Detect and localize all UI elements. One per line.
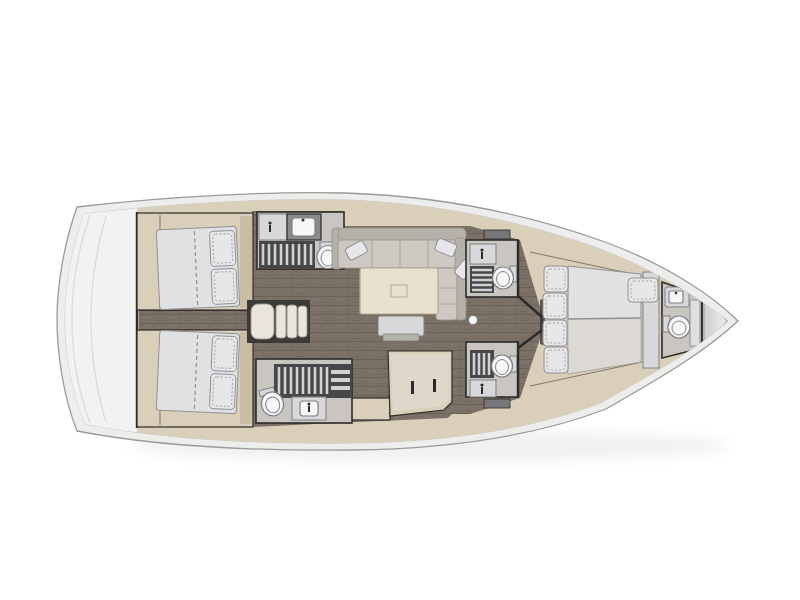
yacht-floor-plan	[0, 0, 800, 600]
head-aft-starboard	[256, 359, 352, 423]
head-aft-port	[257, 212, 344, 269]
vanity-cabinet	[259, 214, 287, 240]
sink-unit	[292, 397, 326, 420]
shower-grate	[470, 350, 494, 378]
headboard-shelf-port	[240, 216, 252, 308]
aft-cabin-port	[137, 213, 253, 310]
saloon-table	[360, 268, 438, 314]
deck-hatch	[484, 230, 510, 239]
galley-worktop	[391, 354, 449, 411]
vanity-unit	[470, 244, 496, 264]
bow-head-panel	[690, 300, 700, 346]
locker-handle	[433, 379, 436, 392]
headboard-shelf-starboard	[240, 332, 252, 424]
mast-post	[469, 316, 478, 325]
shower-grate	[274, 364, 352, 398]
galley-locker	[350, 398, 390, 420]
stool	[378, 316, 424, 341]
double-berth-port	[156, 226, 239, 309]
vanity-unit	[470, 380, 496, 397]
floor-plan-stage	[0, 0, 800, 600]
island-berth	[543, 266, 641, 374]
locker-handle	[411, 381, 414, 394]
shower-grate	[470, 266, 494, 293]
companionway-steps	[247, 300, 310, 343]
deck-hatch	[484, 399, 510, 408]
aft-cabin-starboard	[137, 330, 253, 427]
double-berth-starboard	[156, 330, 239, 413]
shower-grate	[259, 241, 315, 268]
head-mid-port	[466, 230, 518, 297]
